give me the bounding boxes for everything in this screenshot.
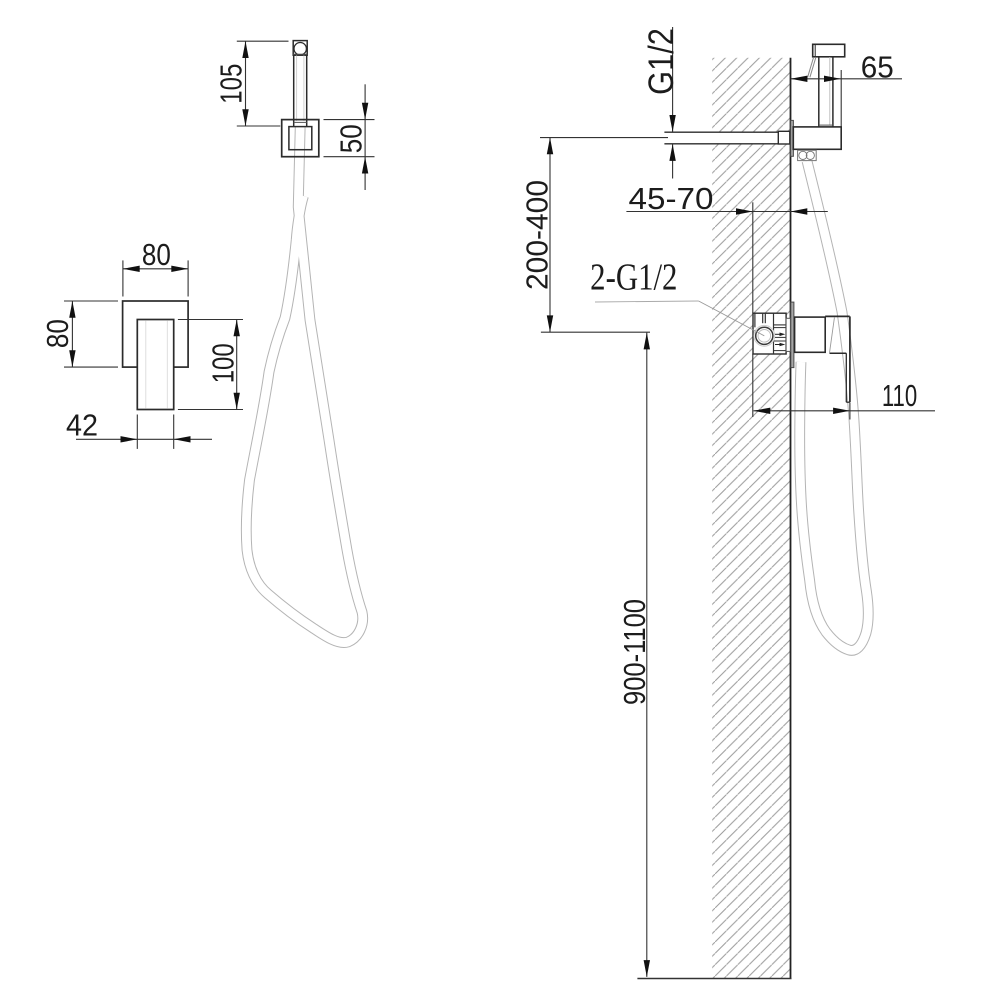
svg-text:80: 80 xyxy=(142,238,171,273)
svg-text:45-70: 45-70 xyxy=(629,181,714,216)
svg-text:80: 80 xyxy=(41,319,76,348)
svg-text:50: 50 xyxy=(335,124,370,153)
svg-text:65: 65 xyxy=(861,51,894,85)
svg-text:900-1100: 900-1100 xyxy=(618,599,653,705)
svg-text:105: 105 xyxy=(214,64,249,104)
svg-text:G1/2: G1/2 xyxy=(641,28,680,95)
svg-text:200-400: 200-400 xyxy=(520,180,555,290)
svg-text:110: 110 xyxy=(882,379,917,413)
svg-text:100: 100 xyxy=(206,343,241,383)
svg-text:2-G1/2: 2-G1/2 xyxy=(590,255,677,298)
svg-text:42: 42 xyxy=(66,409,98,443)
